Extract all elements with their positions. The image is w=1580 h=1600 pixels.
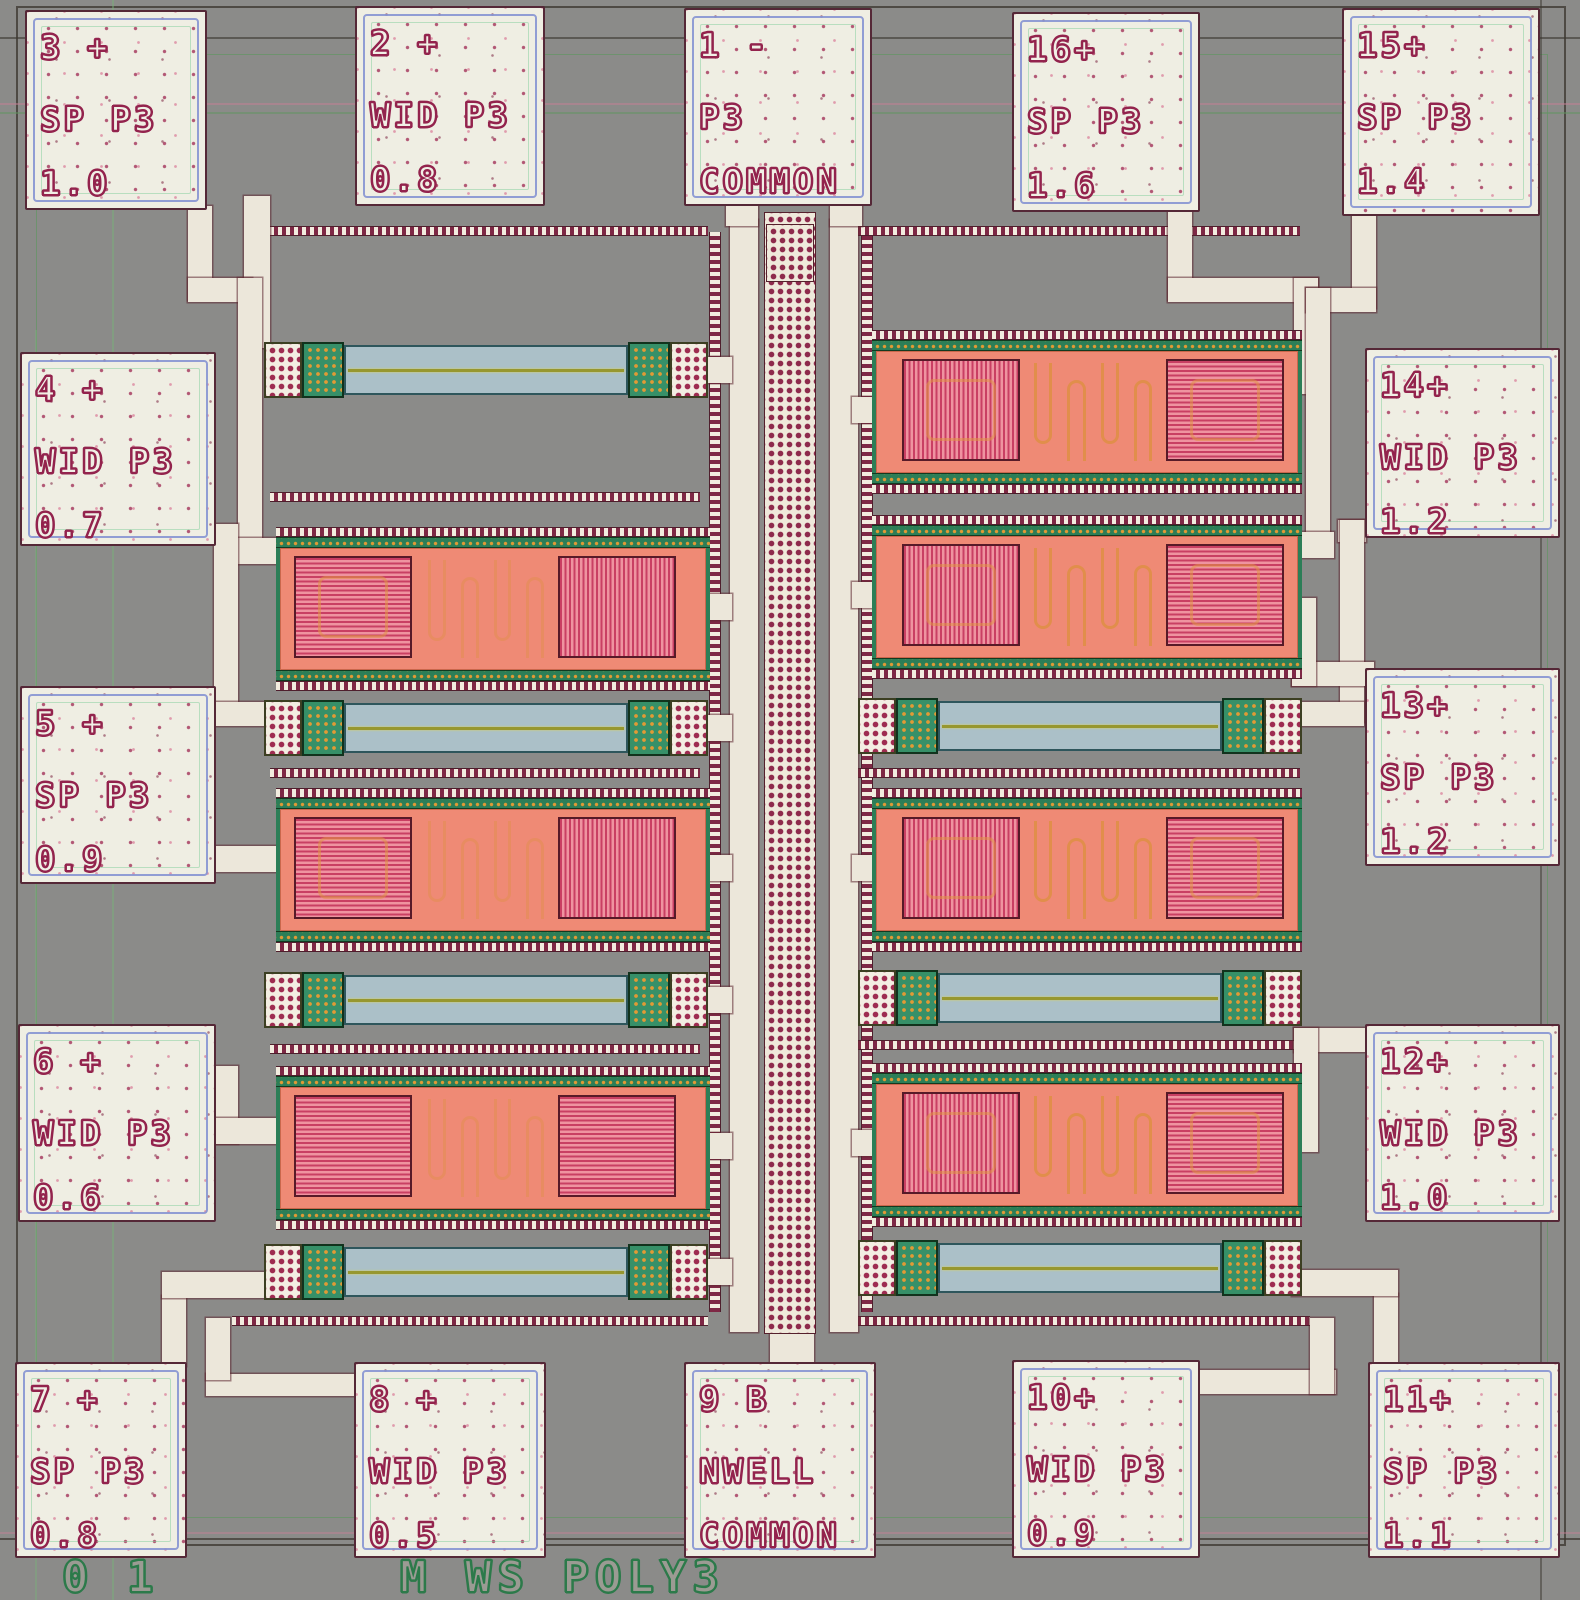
pad7-trace <box>162 1272 268 1298</box>
pad-label: COMMON <box>699 1516 840 1556</box>
serpentine-block <box>276 527 710 691</box>
contact-pad <box>302 342 344 398</box>
pad-label: 0.9 <box>1027 1514 1097 1554</box>
serpentine-block <box>872 330 1302 494</box>
fine-serpentine-left <box>902 544 1020 646</box>
tab <box>704 715 732 741</box>
pad4-trace <box>214 702 270 726</box>
pad-label: 1.4 <box>1357 162 1427 202</box>
fine-serpentine-left <box>294 1095 412 1197</box>
contact-pad <box>628 342 670 398</box>
guard-line <box>270 768 700 778</box>
poly-line-bar <box>938 1243 1222 1293</box>
kelvin-bar <box>264 1244 708 1300</box>
via-line <box>872 330 1302 340</box>
pad-label: 1.0 <box>1380 1178 1450 1218</box>
bond-pad-16: 16+ SP P3 1.6 <box>1012 12 1200 212</box>
contact-strip <box>872 931 1302 942</box>
pad-label: 15+ <box>1357 26 1427 66</box>
pad1-via-patch <box>766 224 814 282</box>
die-photo: 3 + SP P3 1.0 2 + WID P3 0.8 1 - P3 COMM… <box>0 0 1580 1600</box>
bond-pad-8: 8 + WID P3 0.5 <box>354 1362 546 1558</box>
via-pad <box>670 700 708 756</box>
contact-strip <box>872 340 1302 351</box>
via-pad <box>1264 698 1302 754</box>
pad10-trace <box>1310 1318 1334 1394</box>
kelvin-bar <box>264 700 708 756</box>
common-trace-right <box>830 220 858 1332</box>
pad-label: 0.5 <box>369 1516 439 1556</box>
fine-serpentine-left <box>902 817 1020 919</box>
kelvin-bar <box>264 972 708 1028</box>
pad-label: 0.6 <box>33 1178 103 1218</box>
pad-label: 12+ <box>1380 1042 1450 1082</box>
fine-serpentine-right <box>1166 359 1284 461</box>
guard-line <box>232 1316 708 1326</box>
via-line <box>276 681 710 691</box>
fine-serpentine-left <box>294 817 412 919</box>
contact-pad <box>896 970 938 1026</box>
guard-line <box>270 226 708 236</box>
pad-label: SP P3 <box>1383 1452 1500 1492</box>
pad-label: NWELL <box>699 1452 816 1492</box>
via-line <box>276 1220 710 1230</box>
pad6-trace <box>214 1118 280 1144</box>
bond-pad-12: 12+ WID P3 1.0 <box>1365 1024 1560 1222</box>
via-pad <box>264 972 302 1028</box>
pad-label: 2 + <box>370 24 440 64</box>
pad-label: SP P3 <box>35 776 152 816</box>
via-line <box>872 515 1302 525</box>
contact-pad <box>628 1244 670 1300</box>
bond-pad-7: 7 + SP P3 0.8 <box>15 1362 187 1558</box>
pad-label: 13+ <box>1380 686 1450 726</box>
tab <box>704 1259 732 1285</box>
via-pad <box>670 1244 708 1300</box>
pad-label: SP P3 <box>30 1452 147 1492</box>
via-pad <box>858 970 896 1026</box>
via-pad <box>264 700 302 756</box>
contact-pad <box>896 1240 938 1296</box>
via-line <box>276 527 710 537</box>
via-line <box>872 1217 1302 1227</box>
tab <box>704 357 732 383</box>
contact-strip <box>872 525 1302 536</box>
pad5-trace <box>214 846 280 872</box>
pad7-trace <box>162 1296 186 1366</box>
serpentine-body <box>276 548 710 670</box>
contact-pad <box>628 972 670 1028</box>
pad-label: 1.6 <box>1027 166 1097 206</box>
bond-pad-6: 6 + WID P3 0.6 <box>18 1024 216 1222</box>
poly-line-bar <box>344 345 628 395</box>
pad-label: SP P3 <box>1027 102 1144 142</box>
contact-strip <box>872 1206 1302 1217</box>
serpentine-body <box>872 351 1302 473</box>
guard-line <box>845 226 1300 236</box>
contact-pad <box>302 1244 344 1300</box>
pad-label: 1 - <box>699 26 769 66</box>
contact-strip <box>872 473 1302 484</box>
poly-line-bar <box>938 973 1222 1023</box>
serpentine-block <box>872 788 1302 952</box>
pad-label: WID P3 <box>1380 438 1521 478</box>
pad-label: 8 + <box>369 1380 439 1420</box>
pad-label: 6 + <box>33 1042 103 1082</box>
via-line <box>872 788 1302 798</box>
bond-pad-14: 14+ WID P3 1.2 <box>1365 348 1560 538</box>
process-label: M WS POLY3 <box>400 1552 725 1600</box>
fine-serpentine-left <box>902 359 1020 461</box>
pad-label: SP P3 <box>40 100 157 140</box>
contact-pad <box>302 700 344 756</box>
via-pad <box>264 342 302 398</box>
pad-label: 9 B <box>699 1380 769 1420</box>
via-line <box>872 1063 1302 1073</box>
contact-strip <box>872 658 1302 669</box>
via-pad <box>1264 970 1302 1026</box>
via-line <box>872 942 1302 952</box>
fine-serpentine-right <box>558 556 676 658</box>
scale-label: 0 1 <box>62 1552 159 1600</box>
pad11-trace <box>1292 1270 1398 1296</box>
pad-label: WID P3 <box>33 1114 174 1154</box>
kelvin-bar <box>858 1240 1302 1296</box>
poly-line-bar <box>344 703 628 753</box>
tab <box>704 987 732 1013</box>
fine-serpentine-left <box>902 1092 1020 1194</box>
pad-label: 0.8 <box>370 160 440 200</box>
bond-pad-4: 4 + WID P3 0.7 <box>20 352 216 546</box>
pad-label: 0.7 <box>35 506 105 546</box>
guard-line <box>845 768 1300 778</box>
guard-line <box>270 1044 700 1054</box>
via-line <box>276 788 710 798</box>
contact-pad <box>1222 970 1264 1026</box>
pad-label: 0.9 <box>35 840 105 880</box>
pad-label: WID P3 <box>370 96 511 136</box>
fine-serpentine-right <box>1166 544 1284 646</box>
pad-label: COMMON <box>699 162 840 202</box>
contact-pad <box>1222 698 1264 754</box>
guard-line <box>845 1040 1300 1050</box>
kelvin-bar <box>858 970 1302 1026</box>
contact-strip <box>276 670 710 681</box>
poly-line-bar <box>938 701 1222 751</box>
contact-pad <box>1222 1240 1264 1296</box>
poly-line-bar <box>344 1247 628 1297</box>
bond-pad-13: 13+ SP P3 1.2 <box>1365 668 1560 866</box>
via-line <box>276 1066 710 1076</box>
pad11-trace <box>1374 1294 1398 1366</box>
serpentine-body <box>872 809 1302 931</box>
pad-label: SP P3 <box>1380 758 1497 798</box>
via-pad <box>264 1244 302 1300</box>
contact-strip <box>276 1209 710 1220</box>
pad-label: SP P3 <box>1357 98 1474 138</box>
pad-label: WID P3 <box>1027 1450 1168 1490</box>
pad-label: 14+ <box>1380 366 1450 406</box>
via-pad <box>858 698 896 754</box>
bond-pad-5: 5 + SP P3 0.9 <box>20 686 216 884</box>
bond-pad-3: 3 + SP P3 1.0 <box>25 10 207 210</box>
via-pad <box>670 972 708 1028</box>
contact-pad <box>302 972 344 1028</box>
pad-label: 3 + <box>40 28 110 68</box>
pad3-trace <box>238 278 262 552</box>
guard-line <box>845 1316 1310 1326</box>
contact-strip <box>872 798 1302 809</box>
fine-serpentine-left <box>294 556 412 658</box>
serpentine-body <box>872 1084 1302 1206</box>
pad-label: 1.2 <box>1380 502 1450 542</box>
pad-label: 0.8 <box>30 1516 100 1556</box>
bond-pad-9: 9 B NWELL COMMON <box>684 1362 876 1558</box>
serpentine-body <box>872 536 1302 658</box>
pad-label: 5 + <box>35 704 105 744</box>
pad-label: WID P3 <box>369 1452 510 1492</box>
pad15-trace <box>1306 288 1330 544</box>
poly-line-bar <box>344 975 628 1025</box>
pad-label: 1.0 <box>40 164 110 204</box>
contact-strip <box>276 537 710 548</box>
via-pad <box>858 1240 896 1296</box>
pad-label: 7 + <box>30 1380 100 1420</box>
contact-pad <box>896 698 938 754</box>
pad-label: WID P3 <box>1380 1114 1521 1154</box>
pad4-trace <box>214 524 238 716</box>
serpentine-block <box>276 1066 710 1230</box>
guard-line <box>270 492 700 502</box>
pad-label: WID P3 <box>35 442 176 482</box>
bond-pad-1: 1 - P3 COMMON <box>684 8 872 206</box>
via-pad <box>1264 1240 1302 1296</box>
via-line <box>872 669 1302 679</box>
via-line <box>276 942 710 952</box>
bond-pad-2: 2 + WID P3 0.8 <box>355 6 545 206</box>
kelvin-bar <box>858 698 1302 754</box>
kelvin-bar <box>264 342 708 398</box>
contact-pad <box>628 700 670 756</box>
contact-strip <box>872 1073 1302 1084</box>
pad-label: P3 <box>699 98 746 138</box>
serpentine-body <box>276 809 710 931</box>
contact-strip <box>276 798 710 809</box>
fine-serpentine-right <box>558 817 676 919</box>
common-via-strip <box>764 212 816 1334</box>
bond-pad-10: 10+ WID P3 0.9 <box>1012 1360 1200 1558</box>
bond-pad-11: 11+ SP P3 1.1 <box>1368 1362 1560 1558</box>
fine-serpentine-right <box>1166 1092 1284 1194</box>
serpentine-block <box>276 788 710 952</box>
contact-strip <box>276 1076 710 1087</box>
pad-label: 4 + <box>35 370 105 410</box>
via-line <box>872 484 1302 494</box>
serpentine-block <box>872 1063 1302 1227</box>
pad8-trace <box>206 1318 230 1380</box>
common-trace-left <box>730 220 758 1332</box>
bond-pad-15: 15+ SP P3 1.4 <box>1342 8 1540 216</box>
pad-label: 1.1 <box>1383 1516 1453 1556</box>
pad-label: 1.2 <box>1380 822 1450 862</box>
contact-strip <box>276 931 710 942</box>
pad14-trace <box>1340 520 1364 722</box>
serpentine-body <box>276 1087 710 1209</box>
pad-label: 10+ <box>1027 1378 1097 1418</box>
fine-serpentine-right <box>1166 817 1284 919</box>
serpentine-block <box>872 515 1302 679</box>
via-pad <box>670 342 708 398</box>
pad-label: 11+ <box>1383 1380 1453 1420</box>
fine-serpentine-right <box>558 1095 676 1197</box>
pad-label: 16+ <box>1027 30 1097 70</box>
